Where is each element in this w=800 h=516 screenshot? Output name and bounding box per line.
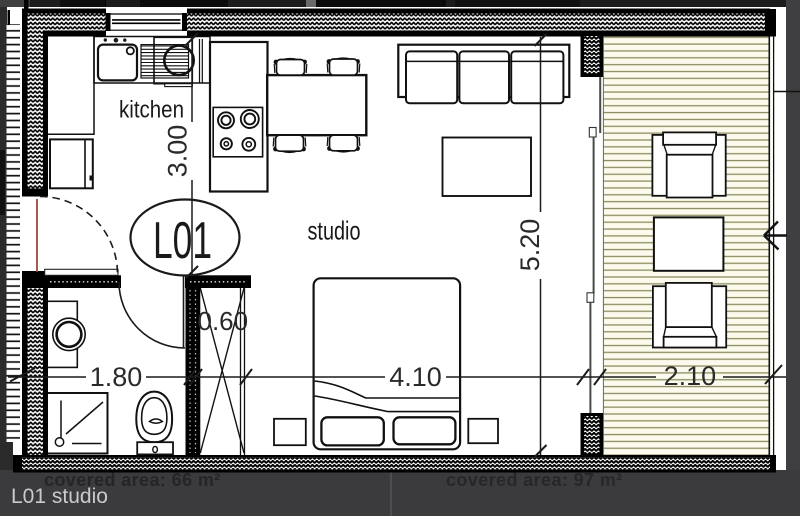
svg-text:1.80: 1.80 bbox=[90, 362, 143, 392]
svg-text:L01: L01 bbox=[153, 212, 212, 270]
svg-text:3.00: 3.00 bbox=[163, 125, 193, 178]
svg-text:studio: studio bbox=[308, 216, 361, 246]
svg-text:L01 studio: L01 studio bbox=[11, 485, 108, 508]
svg-text:0.60: 0.60 bbox=[197, 306, 248, 336]
svg-text:5.20: 5.20 bbox=[515, 219, 545, 272]
svg-text:covered area: 97 m²: covered area: 97 m² bbox=[446, 470, 623, 490]
svg-text:kitchen: kitchen bbox=[119, 97, 184, 124]
svg-text:2.10: 2.10 bbox=[664, 361, 717, 391]
svg-text:4.10: 4.10 bbox=[389, 362, 442, 392]
